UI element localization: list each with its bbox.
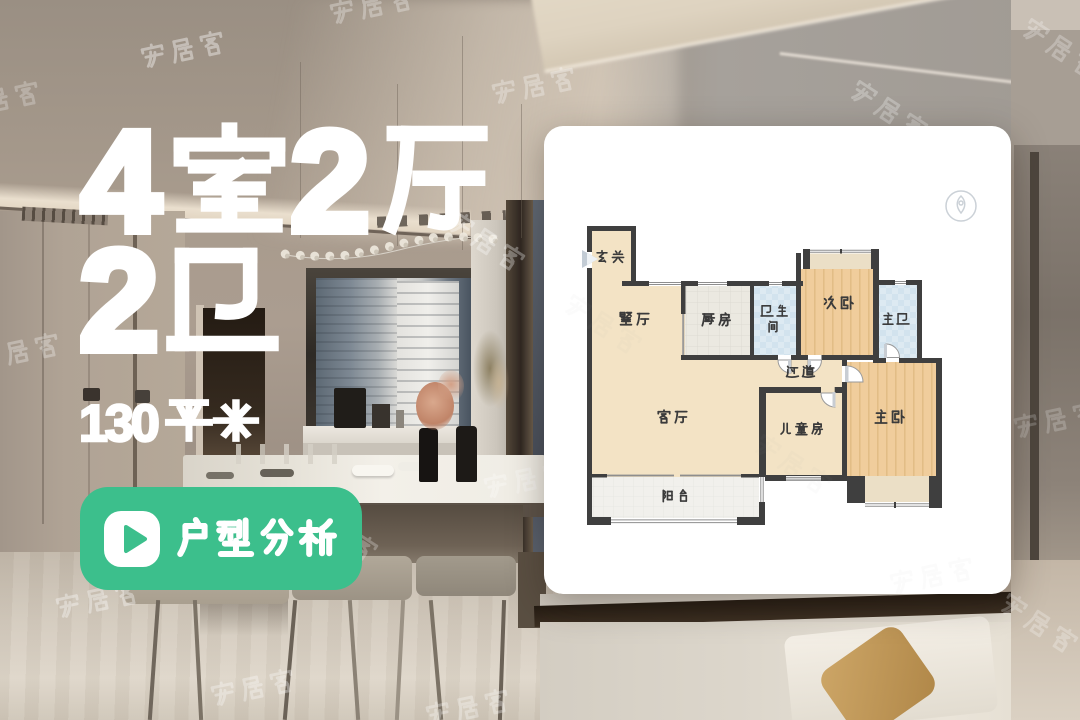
svg-text:2: 2 — [290, 101, 370, 262]
svg-text:2: 2 — [79, 220, 159, 381]
svg-text:130: 130 — [79, 395, 158, 453]
